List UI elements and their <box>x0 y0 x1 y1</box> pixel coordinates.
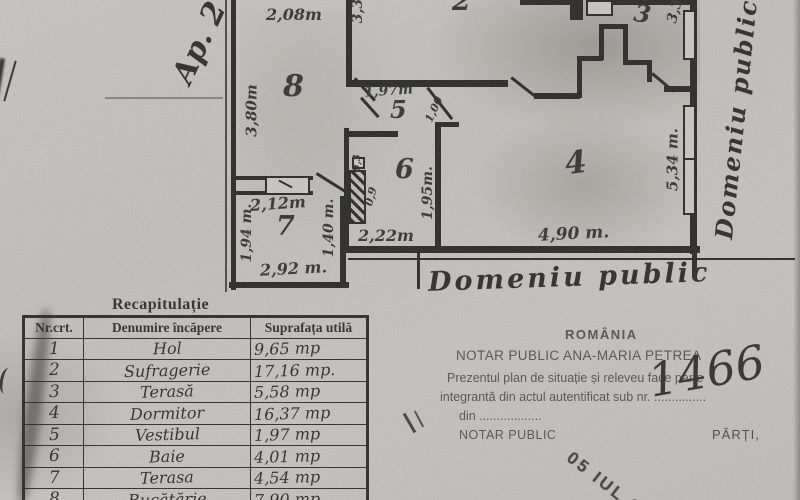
wall-segment <box>344 131 398 137</box>
col-header-area: Suprafața utilă <box>251 317 368 339</box>
domeniu-public-bottom: Domeniu public <box>428 259 711 296</box>
dim-label: 2,12m <box>250 194 307 214</box>
dim-label: 1,40 m. <box>322 193 336 263</box>
scan-stain <box>430 0 700 130</box>
row-area: 1,97 mp <box>254 424 321 445</box>
row-name: Bucătărie <box>127 488 206 500</box>
date-stamp: 05 IUL 2010 <box>563 448 675 500</box>
window-tick <box>684 158 695 160</box>
table-header-row: Nr.crt. Denumire încăpere Suprafața util… <box>24 317 368 339</box>
country-label: ROMÂNIA <box>565 327 638 342</box>
dim-label: 2,08m <box>266 7 322 23</box>
table-row: 7 Terasa 4,54 mp <box>24 467 368 489</box>
table-row: 2 Sufragerie 17,16 mp. <box>24 360 368 382</box>
row-area: 7,90 mp <box>254 489 321 500</box>
room-label-3: 3 <box>632 1 652 27</box>
notary-text-line3: din .................. <box>459 409 542 423</box>
window-symbol <box>683 105 696 215</box>
page-edge-shadow <box>793 0 800 500</box>
table-row: 5 Vestibul 1,97 mp <box>24 424 368 446</box>
row-name: Vestibul <box>134 424 199 445</box>
col-header-nr: Nr.crt. <box>24 317 84 339</box>
wall-segment <box>435 122 459 127</box>
row-name: Sufragerie <box>124 360 211 381</box>
dim-label: 4,90 m. <box>538 224 610 245</box>
dim-label: 1,97m <box>364 82 414 99</box>
ink-mark <box>414 411 424 428</box>
wall-segment <box>417 253 420 289</box>
row-nr: 7 <box>48 468 59 488</box>
dim-label: 1,95m. <box>421 158 435 228</box>
wall-segment <box>623 24 628 64</box>
sidewalk-line <box>348 258 795 260</box>
door-swing-line <box>316 172 346 192</box>
row-name: Hol <box>152 339 181 359</box>
dim-label: 5,34 m. <box>666 124 681 196</box>
row-nr: 2 <box>48 360 59 380</box>
dim-label: 2,92 m. <box>260 259 328 278</box>
wall-segment <box>231 0 236 290</box>
wall-segment <box>577 56 582 98</box>
room-label-2: 2 <box>452 0 471 15</box>
wall-segment <box>344 128 349 248</box>
ink-mark <box>403 413 417 434</box>
row-area: 5,58 mp <box>254 381 321 402</box>
table-row: 1 Hol 9,65 mp <box>24 338 368 360</box>
room-label-5: 5 <box>390 98 407 122</box>
row-area: 16,37 mp <box>254 403 331 424</box>
wall-segment <box>534 93 580 99</box>
wall-segment <box>520 0 572 5</box>
dim-label: 0,9 <box>361 176 382 217</box>
scanned-document-page: 8 2 3 4 5 6 7 2,08m 3,80m 3,3 1,97m 1,00… <box>0 0 800 500</box>
dim-label: 3,80m <box>245 76 260 146</box>
window-symbol <box>586 0 613 16</box>
ink-smudge <box>0 58 5 182</box>
dim-label: 3,3 <box>351 0 365 31</box>
row-name: Terasa <box>140 468 194 488</box>
wall-segment <box>647 60 652 82</box>
row-area: 4,54 mp <box>254 467 321 488</box>
wall-segment <box>344 246 700 253</box>
wall-segment <box>229 282 349 288</box>
ink-smudge <box>3 61 16 102</box>
wall-segment <box>225 0 227 292</box>
row-name: Terasă <box>140 382 194 402</box>
dim-label: 2,22m <box>358 228 414 244</box>
flue-box <box>570 0 583 20</box>
row-nr: 6 <box>48 446 59 466</box>
row-area: 4,01 mp <box>254 446 321 467</box>
dim-label: 1,94 m. <box>240 198 254 268</box>
recap-table: Nr.crt. Denumire încăpere Suprafața util… <box>22 315 369 500</box>
table-row: 6 Baie 4,01 mp <box>24 446 368 468</box>
row-nr: 8 <box>48 489 59 500</box>
domeniu-public-right: Domeniu public <box>712 0 761 241</box>
row-nr: 5 <box>48 425 59 445</box>
table-row: 3 Terasă 5,58 mp <box>24 381 368 403</box>
ink-mark <box>0 367 15 395</box>
col-header-name: Denumire încăpere <box>84 317 251 339</box>
row-nr: 4 <box>48 403 59 423</box>
table-row: 4 Dormitor 16,37 mp <box>24 403 368 425</box>
row-nr: 3 <box>48 382 59 402</box>
row-name: Baie <box>149 446 185 466</box>
notary-text-line4: NOTAR PUBLIC <box>459 428 556 442</box>
room-label-8: 8 <box>283 72 304 102</box>
wall-segment <box>599 24 604 60</box>
dim-label: 0,3 <box>353 143 363 183</box>
room-label-6: 6 <box>395 156 414 183</box>
room-label-7: 7 <box>276 213 295 240</box>
row-area: 17,16 mp. <box>254 360 336 381</box>
row-nr: 1 <box>48 339 59 359</box>
parties-label: PĂRȚI, <box>712 427 760 442</box>
window-symbol <box>683 10 696 60</box>
room-label-4: 4 <box>563 147 588 180</box>
row-name: Dormitor <box>130 403 205 424</box>
row-area: 9,65 mp <box>254 338 321 359</box>
table-title: Recapitulație <box>112 296 209 314</box>
table-row: 8 Bucătărie 7,90 mp <box>24 489 368 500</box>
